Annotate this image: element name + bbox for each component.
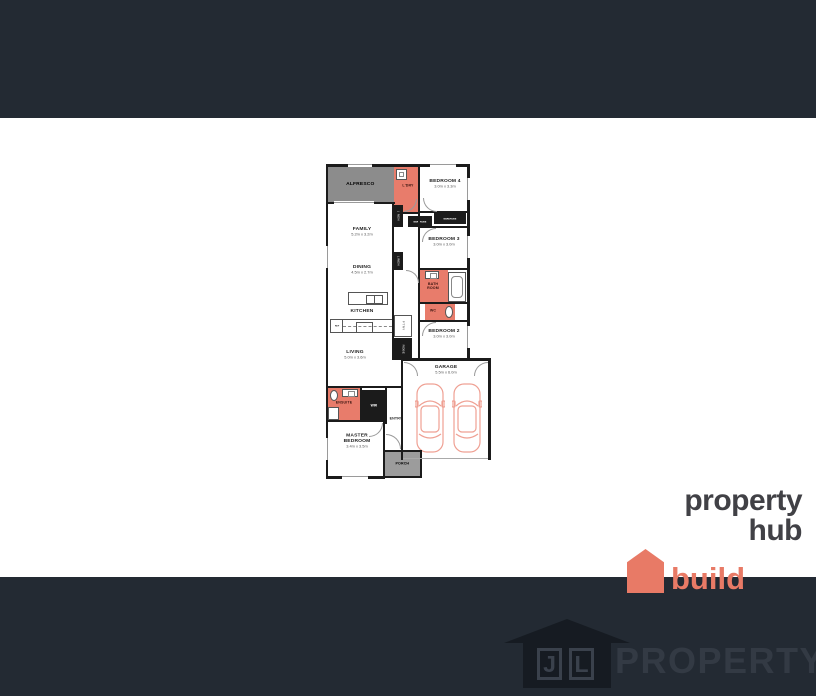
garage-door-line [403, 458, 488, 459]
wall-garage-right [488, 358, 491, 460]
brand-logo: property hub build [627, 486, 802, 593]
fridge-label: REF [334, 325, 338, 327]
wall-bed2-top [420, 320, 468, 322]
watermark-logo: J L PROPERTY [504, 617, 816, 696]
wall-master-right [383, 422, 385, 478]
watermark-text: PROPERTY [615, 643, 816, 679]
car-left-icon [415, 380, 445, 456]
watermark-monogram-l: L [569, 648, 594, 680]
watermark-house-roof-icon [504, 619, 630, 643]
window-bed2 [466, 326, 470, 348]
room-wc-label: WC [426, 308, 440, 315]
wall-left [326, 164, 328, 479]
ensuite-shower [328, 407, 339, 420]
room-garage-label: GARAGE 5.5m x 6.0m [421, 364, 471, 377]
wall-bath-bottom [420, 302, 468, 304]
wall-laundry-bottom [394, 212, 418, 214]
wall-bed3-top [420, 226, 468, 228]
window-alfresco-top [348, 163, 372, 167]
door-arc-bed3 [422, 228, 436, 242]
window-bed4 [466, 178, 470, 200]
ensuite-vanity [342, 389, 358, 397]
slider-alfresco [334, 201, 374, 205]
wall-wir-right [385, 388, 387, 424]
fridge-space: REF [330, 319, 343, 333]
kitchen-island [348, 292, 388, 305]
wall-ensuite-right [360, 388, 362, 421]
wall-suite-bottom [326, 420, 387, 422]
walk-in-robe: WIR [362, 390, 385, 421]
wall-bed3-bottom [420, 268, 468, 270]
room-alfresco-label: ALFRESCO [346, 181, 374, 186]
room-porch-label: PORCH [396, 462, 410, 466]
pantry-label: P'TRY [402, 321, 405, 331]
room-dining-label: DINING 4.5m x 2.7m [340, 264, 384, 277]
room-kitchen-label: KITCHEN [340, 308, 384, 315]
room-family-label: FAMILY 5.2m x 3.2m [340, 226, 384, 239]
wall-garage-top [401, 358, 491, 361]
watermark-monogram-j: J [537, 648, 562, 680]
wc-toilet [445, 306, 453, 318]
window-master-bottom [342, 475, 368, 479]
car-right-icon [452, 380, 482, 456]
room-bathroom-label: BATH ROOM [422, 280, 444, 293]
wall-living-bottom [326, 386, 403, 388]
wardrobe-right: WARDROBE [434, 213, 466, 224]
door-arc-entry [386, 434, 401, 449]
robe-bed2: ROBE [394, 338, 412, 360]
laundry-tub [396, 169, 407, 180]
floor-plan: ALFRESCO L'DRY BEDROOM 4 3.0m x 3.3m FAM… [326, 162, 492, 480]
room-laundry-label: L'DRY [396, 183, 420, 190]
wall-garage-left [401, 358, 403, 460]
window-family [326, 246, 330, 268]
top-banner [0, 0, 816, 118]
bathtub [448, 272, 466, 302]
room-ensuite-label: ENSUITE [329, 400, 359, 407]
wall-bed4-bottom [420, 211, 468, 213]
wall-hall-left [392, 203, 394, 360]
wir-label: WIR [370, 404, 376, 407]
wall-hall-right [418, 164, 420, 360]
window-bed3 [466, 236, 470, 258]
brand-subtitle: build [671, 564, 745, 593]
room-alfresco: ALFRESCO [327, 166, 394, 202]
pantry: P'TRY [394, 315, 412, 337]
room-bed4-label: BEDROOM 4 3.0m x 3.3m [422, 178, 468, 191]
room-living-label: LIVING 5.0m x 3.6m [333, 349, 377, 362]
window-master [326, 438, 330, 460]
brand-title: property hub [627, 486, 802, 546]
brand-house-icon [627, 549, 664, 593]
window-bed4-top [430, 163, 456, 167]
bathroom-vanity [425, 271, 439, 279]
door-arc-bed2 [422, 322, 436, 336]
linen-closet-2: LINEN [393, 252, 403, 270]
door-arc-master [369, 423, 383, 437]
door-arc-garage-right [474, 362, 488, 376]
linen-closet-1: LINEN [393, 205, 403, 227]
door-arc-bed4 [423, 198, 437, 212]
door-arc-garage-left [404, 362, 418, 376]
